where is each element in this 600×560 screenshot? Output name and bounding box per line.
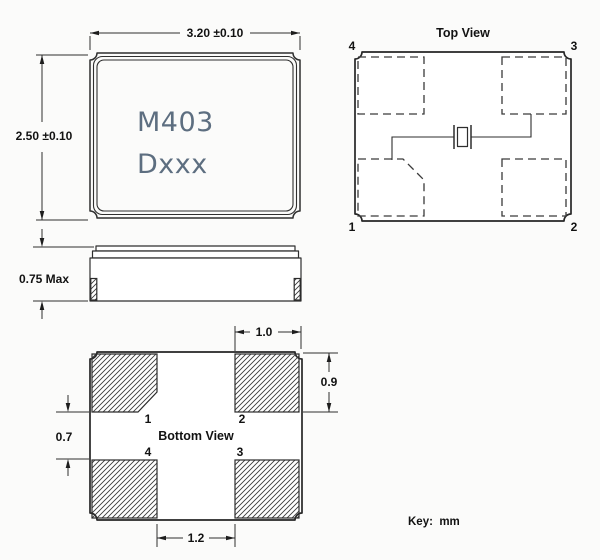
bottom-pad-label-3: 3 — [237, 445, 244, 459]
front-height-value: 2.50 ±0.10 — [16, 129, 73, 143]
bottom-pad-label-1: 1 — [145, 412, 152, 426]
dimension-pad-gap-vertical: 0.7 — [56, 395, 89, 476]
pad-height-value: 0.9 — [321, 375, 338, 389]
side-castellation-pad-right — [294, 279, 300, 301]
pad-gap-vertical-value: 0.7 — [56, 430, 73, 444]
top-view-pin-label-4: 4 — [349, 39, 356, 53]
top-view-pin-label-3: 3 — [571, 39, 578, 53]
side-view: 0.75 Max — [19, 229, 301, 319]
top-view-title: Top View — [436, 26, 490, 40]
dimension-pad-width: 1.0 — [235, 325, 301, 351]
part-marking-line2: Dxxx — [137, 149, 208, 180]
bottom-pad-2 — [235, 354, 299, 412]
side-lid-top — [96, 246, 295, 251]
bottom-pad-label-4: 4 — [145, 445, 152, 459]
side-package-body — [90, 258, 301, 301]
pad-gap-horizontal-value: 1.2 — [188, 531, 205, 545]
bottom-pad-3 — [235, 460, 299, 518]
bottom-pad-label-2: 2 — [239, 412, 246, 426]
dimension-front-width: 3.20 ±0.10 — [90, 26, 300, 50]
bottom-pad-4 — [92, 460, 157, 518]
side-castellation-pad-left — [91, 279, 97, 301]
front-view: M403 Dxxx 3.20 ±0.10 2.50 ±0.10 — [16, 26, 300, 220]
side-lid-step — [93, 251, 299, 258]
part-marking-line1: M403 — [137, 107, 214, 138]
units-key-note: Key: mm — [408, 516, 460, 528]
pad-width-value: 1.0 — [256, 325, 273, 339]
datasheet-mechanical-drawing: M403 Dxxx 3.20 ±0.10 2.50 ±0.10 — [0, 0, 600, 560]
side-height-value: 0.75 Max — [19, 272, 69, 286]
dimension-side-height: 0.75 Max — [19, 229, 94, 319]
bottom-view: 1 2 4 3 Bottom View 1.0 0.9 — [56, 325, 338, 547]
drawing-canvas: M403 Dxxx 3.20 ±0.10 2.50 ±0.10 — [0, 0, 600, 560]
top-view-pin-label-2: 2 — [571, 220, 578, 234]
dimension-pad-height: 0.9 — [303, 353, 338, 412]
dimension-front-height: 2.50 ±0.10 — [16, 55, 88, 220]
top-view: Top View 4 3 1 2 — [349, 26, 578, 234]
top-view-pin-label-1: 1 — [349, 220, 356, 234]
bottom-view-title: Bottom View — [158, 429, 234, 443]
dimension-pad-gap-horizontal: 1.2 — [157, 524, 235, 547]
front-width-value: 3.20 ±0.10 — [187, 26, 244, 40]
